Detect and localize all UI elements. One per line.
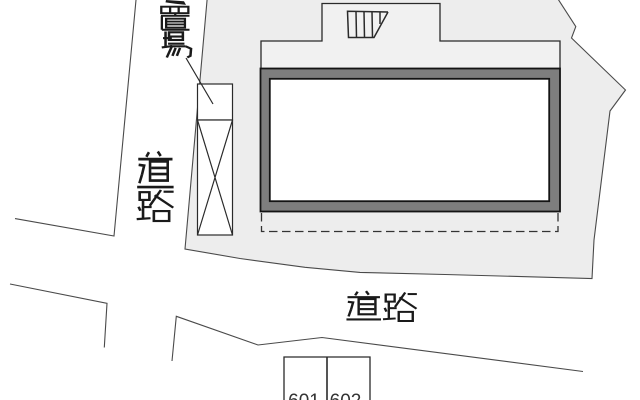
svg-text:602: 602 xyxy=(330,391,362,400)
svg-text:601: 601 xyxy=(288,391,320,400)
